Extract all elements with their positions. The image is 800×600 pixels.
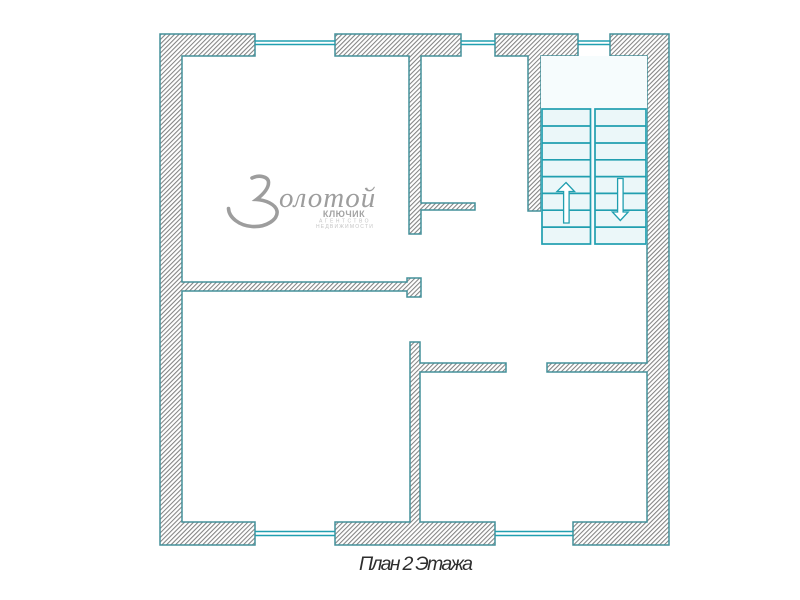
svg-text:КЛЮЧИК: КЛЮЧИК bbox=[323, 209, 365, 219]
svg-text:НЕДВИЖИМОСТИ: НЕДВИЖИМОСТИ bbox=[316, 224, 374, 230]
svg-text:План 2 Этажа: План 2 Этажа bbox=[359, 553, 473, 575]
